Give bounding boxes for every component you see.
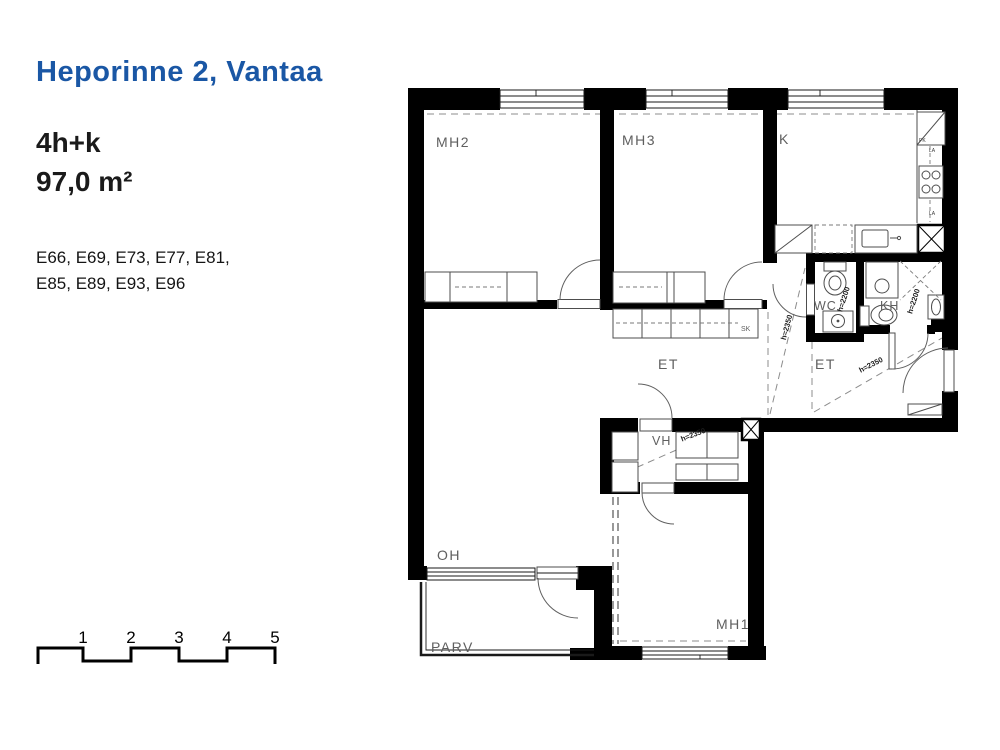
label-vh: VH <box>652 434 671 448</box>
label-et-left: ET <box>658 356 679 372</box>
windows <box>427 90 884 659</box>
label-la-2: LA <box>929 211 936 217</box>
stove <box>919 166 943 198</box>
scale-number-3: 3 <box>174 628 183 647</box>
label-k: K <box>779 131 790 147</box>
height-label-et-left: h=2350 <box>779 314 794 341</box>
unit-numbers-line2: E85, E89, E93, E96 <box>36 271 230 297</box>
label-mh3: MH3 <box>622 132 656 148</box>
scale-number-1: 1 <box>78 628 87 647</box>
apartment-area: 97,0 m² <box>36 166 133 198</box>
label-parv: PARV <box>431 639 474 655</box>
wc-toilet-tank <box>824 262 846 271</box>
label-mh2: MH2 <box>436 134 470 150</box>
label-fridge-pk: PK <box>919 138 926 144</box>
entrance-door-leaf <box>944 350 954 392</box>
label-sk: SK <box>741 326 751 333</box>
unit-numbers: E66, E69, E73, E77, E81, E85, E89, E93, … <box>36 245 230 297</box>
scale-bar: 1 2 3 4 5 <box>25 600 300 695</box>
height-label-et-right: h=2350 <box>857 355 884 375</box>
floorplan-sheet: Heporinne 2, Vantaa 4h+k 97,0 m² E66, E6… <box>0 0 1000 750</box>
scale-number-4: 4 <box>222 628 231 647</box>
apartment-type: 4h+k <box>36 127 101 159</box>
dishwasher <box>815 225 852 253</box>
label-la-1: LA <box>929 148 936 154</box>
unit-numbers-line1: E66, E69, E73, E77, E81, <box>36 245 230 271</box>
label-kh: KH <box>880 299 899 313</box>
label-et-right: ET <box>815 356 836 372</box>
height-label-kh: h=2200 <box>905 288 921 315</box>
kh-toilet-tank <box>860 306 869 326</box>
floor-plan: MH2 MH3 K WC KH ET ET VH OH PARV MH1 SK … <box>395 75 975 670</box>
label-mh1: MH1 <box>716 616 750 632</box>
label-wc: WC <box>814 299 837 313</box>
page-title: Heporinne 2, Vantaa <box>36 56 323 89</box>
ceiling-height-lines <box>427 114 942 644</box>
label-oh: OH <box>437 547 461 563</box>
scale-number-2: 2 <box>126 628 135 647</box>
scale-number-5: 5 <box>270 628 279 647</box>
